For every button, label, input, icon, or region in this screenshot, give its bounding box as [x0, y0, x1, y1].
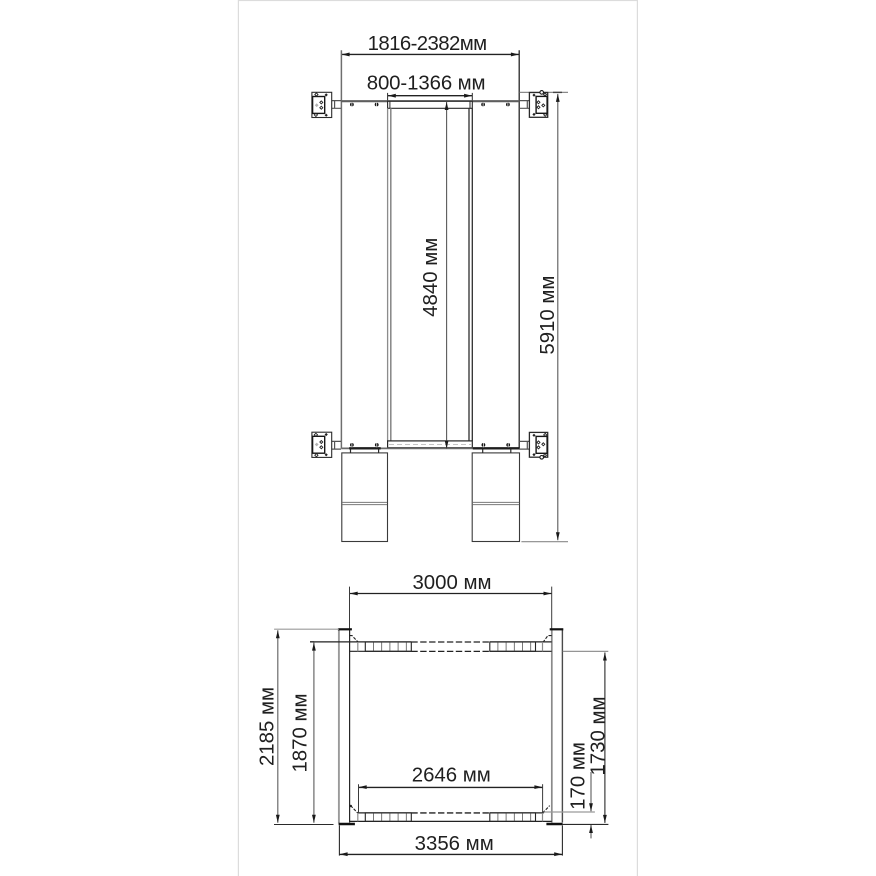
svg-text:1816-2382мм: 1816-2382мм [368, 33, 487, 55]
svg-text:170 мм: 170 мм [568, 742, 590, 810]
svg-text:1730 мм: 1730 мм [588, 696, 610, 775]
svg-text:2185 мм: 2185 мм [257, 687, 279, 766]
svg-text:2646 мм: 2646 мм [412, 764, 491, 786]
svg-text:1870 мм: 1870 мм [290, 693, 312, 772]
svg-text:4840 мм: 4840 мм [420, 238, 442, 317]
svg-text:800-1366 мм: 800-1366 мм [367, 73, 486, 95]
svg-text:3356 мм: 3356 мм [415, 833, 494, 855]
svg-text:3000 мм: 3000 мм [412, 572, 491, 594]
svg-text:5910 мм: 5910 мм [537, 276, 559, 355]
